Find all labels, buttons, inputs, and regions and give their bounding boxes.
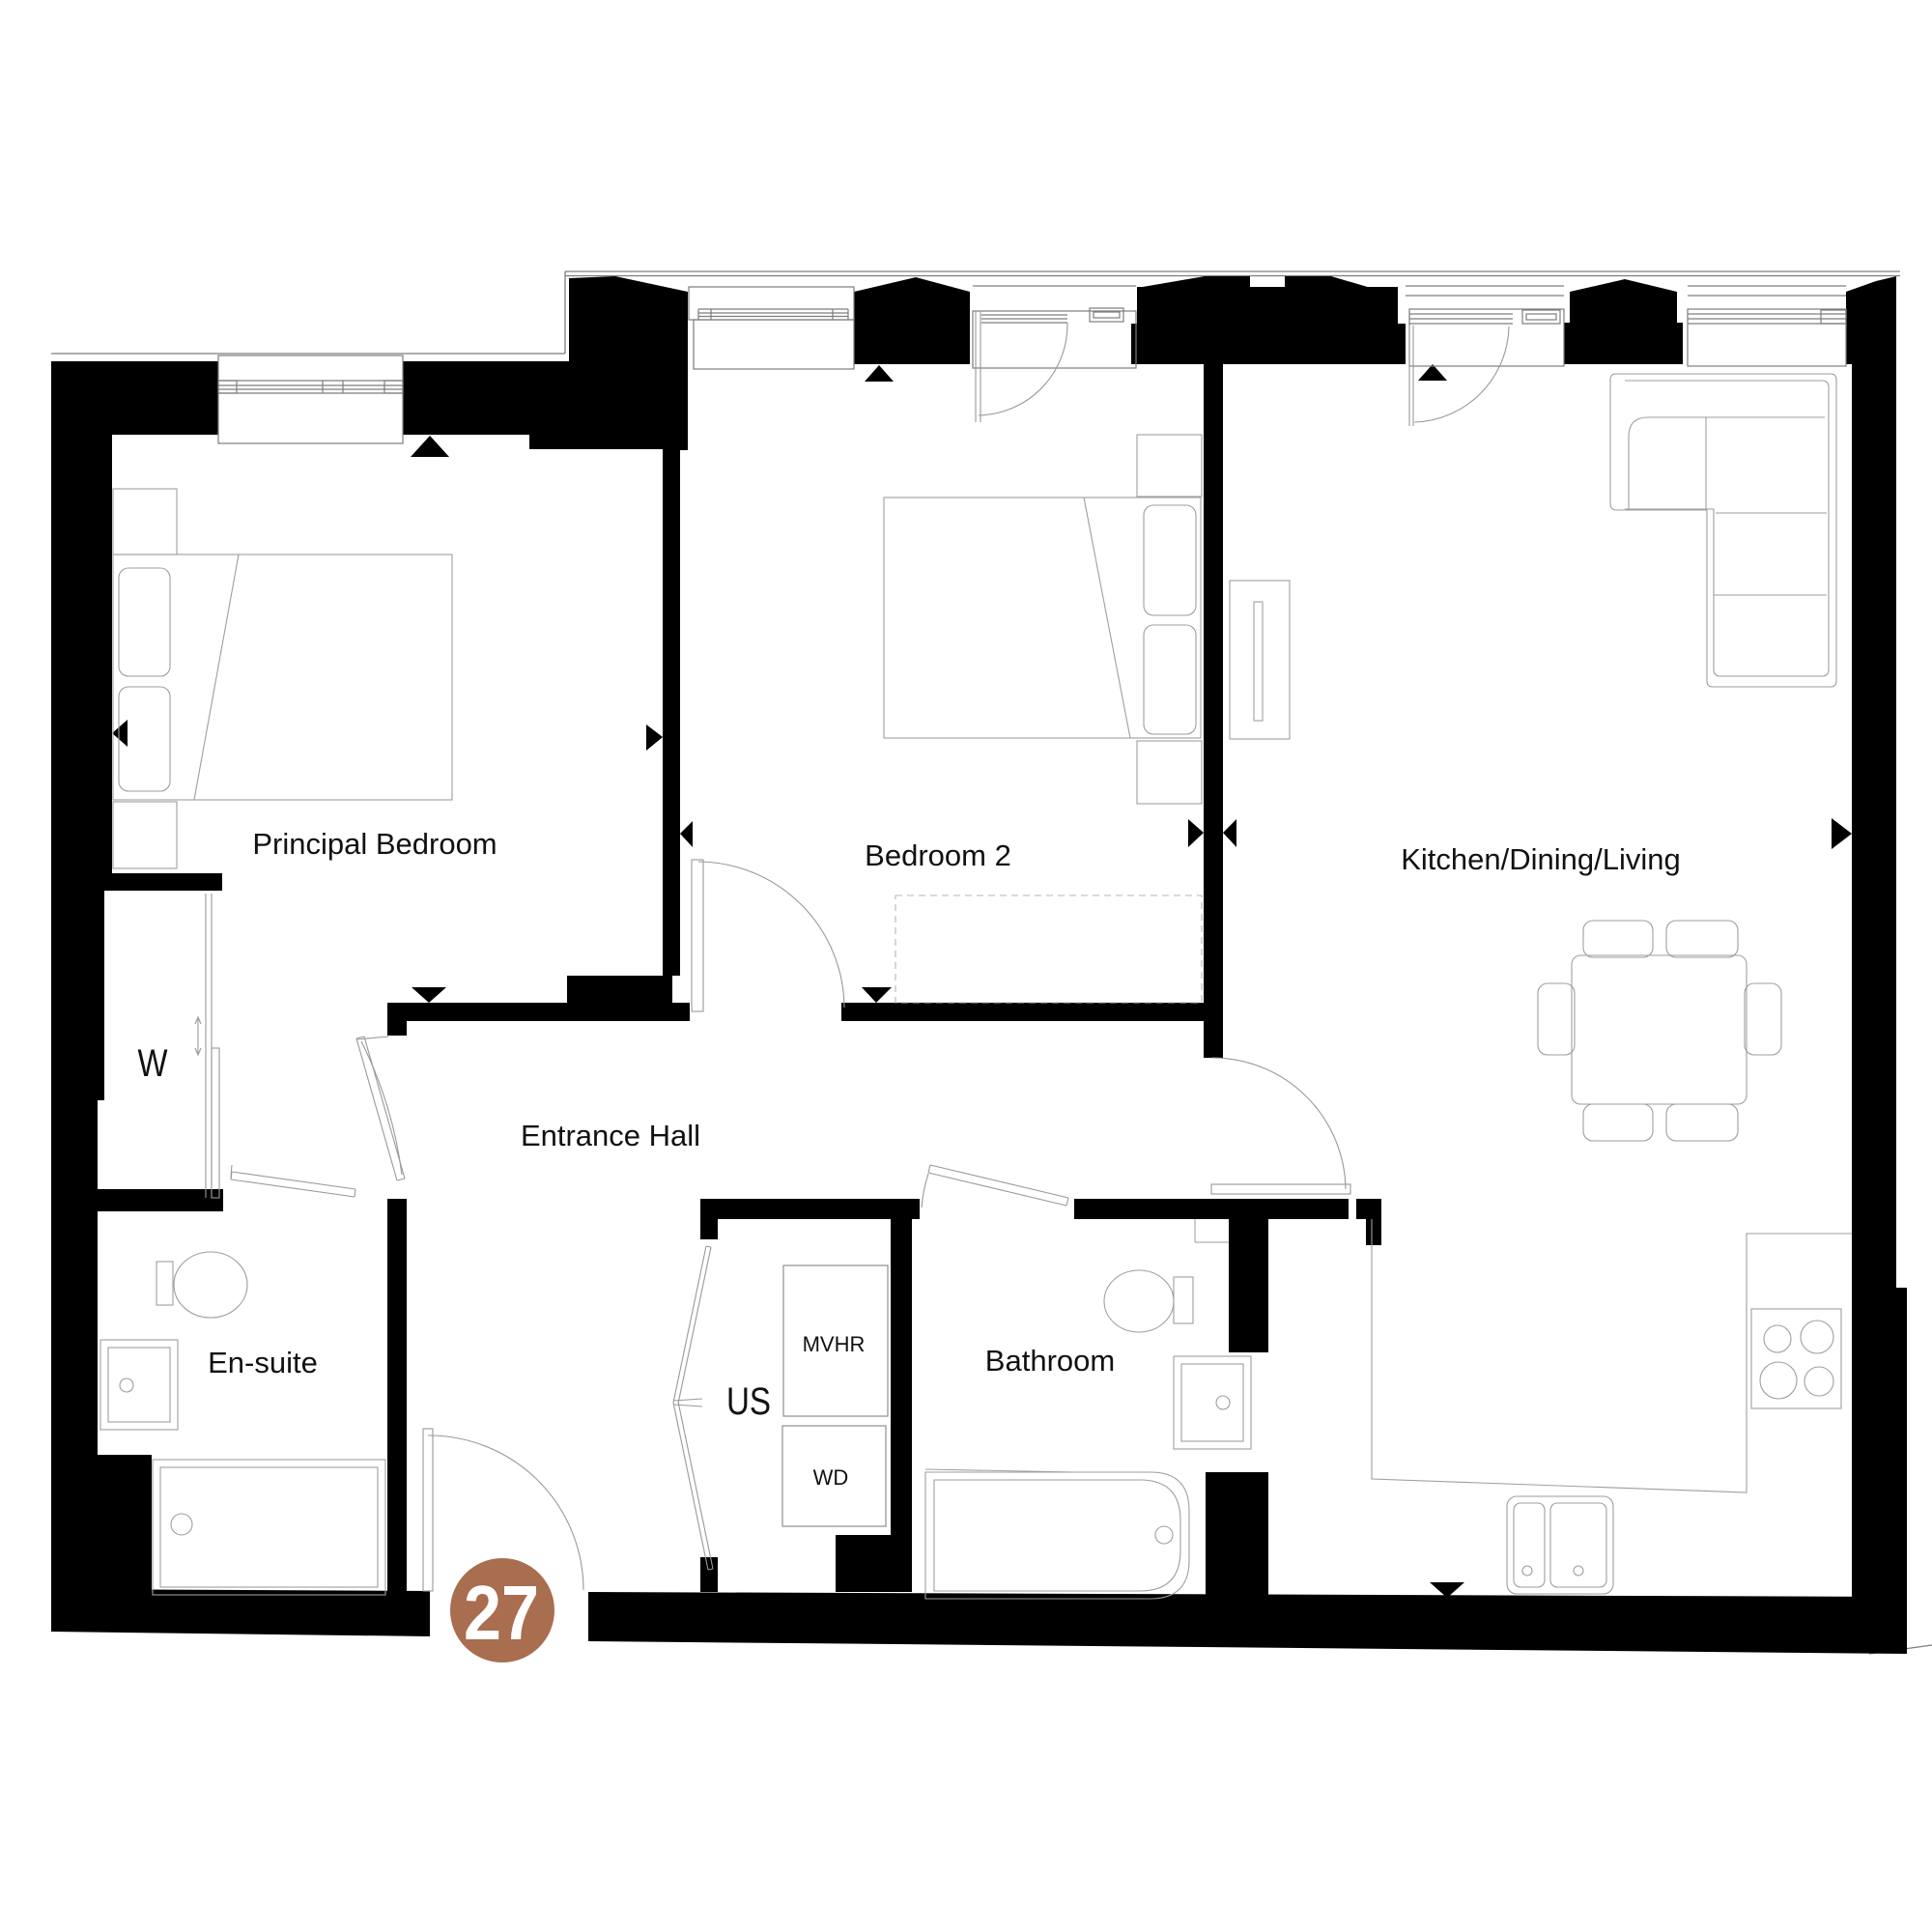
svg-text:US: US (726, 1380, 771, 1423)
svg-text:Principal Bedroom: Principal Bedroom (252, 827, 497, 861)
svg-text:Kitchen/Dining/Living: Kitchen/Dining/Living (1401, 842, 1681, 876)
svg-text:W: W (138, 1042, 168, 1085)
svg-text:Bedroom 2: Bedroom 2 (865, 838, 1011, 872)
svg-text:MVHR: MVHR (803, 1332, 866, 1356)
svg-text:Entrance Hall: Entrance Hall (521, 1119, 700, 1152)
svg-text:En-suite: En-suite (208, 1346, 318, 1379)
svg-text:WD: WD (813, 1465, 849, 1490)
svg-text:27: 27 (464, 1570, 539, 1656)
svg-text:Bathroom: Bathroom (985, 1344, 1115, 1378)
